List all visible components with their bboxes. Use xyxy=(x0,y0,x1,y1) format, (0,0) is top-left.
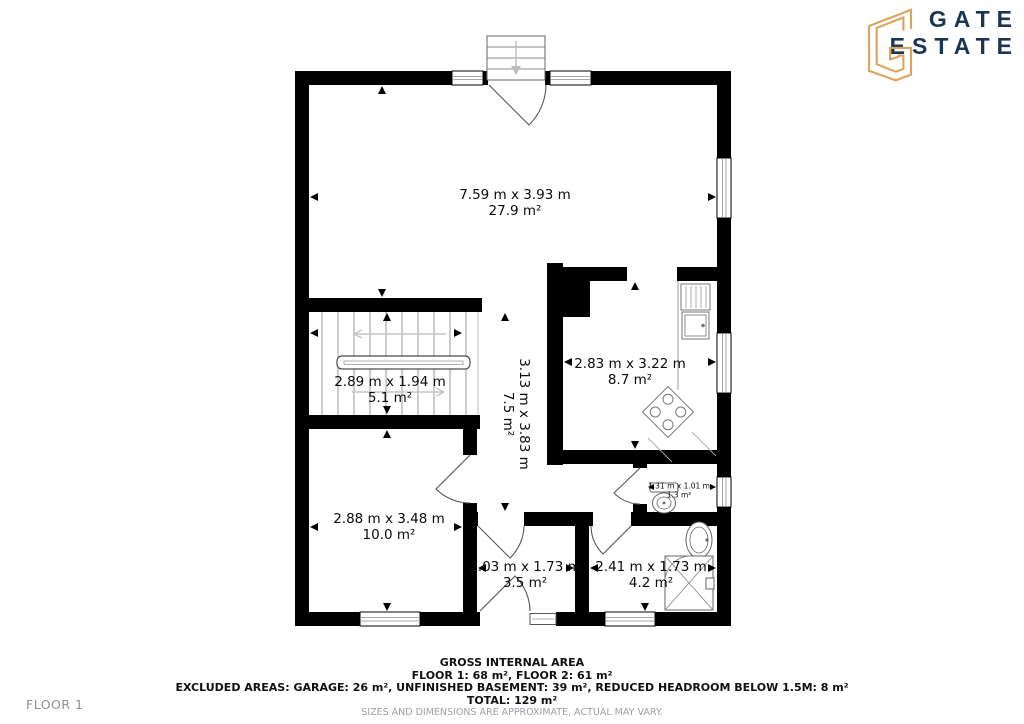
room-area: 7.5 m² xyxy=(500,358,516,470)
window-bottom-bathroom xyxy=(605,612,655,626)
shower-valve xyxy=(706,578,714,589)
room-area: 8.7 m² xyxy=(574,372,686,388)
floor-areas: FLOOR 1: 68 m², FLOOR 2: 61 m² xyxy=(0,670,1024,682)
door-mudroom-top xyxy=(478,526,524,558)
kitchen-sink-icon xyxy=(682,312,709,339)
stair-handrail xyxy=(337,356,470,369)
area-summary: GROSS INTERNAL AREA FLOOR 1: 68 m², FLOO… xyxy=(0,656,1024,719)
entry-steps xyxy=(487,36,545,80)
stove-icon xyxy=(643,387,694,438)
window-right-kitchen xyxy=(717,333,731,393)
room-dimensions: 7.59 m x 3.93 m xyxy=(459,187,571,203)
room-dimensions: 1.31 m x 1.01 m xyxy=(648,482,710,491)
room-label-bathroom: 2.41 m x 1.73 m 4.2 m² xyxy=(595,559,707,591)
room-label-bottom-left-room: 2.88 m x 3.48 m 10.0 m² xyxy=(333,511,445,543)
floor-plan-canvas: 7.59 m x 3.93 m 27.9 m² 2.83 m x 3.22 m … xyxy=(0,0,1024,724)
excluded-areas: EXCLUDED AREAS: GARAGE: 26 m², UNFINISHE… xyxy=(0,682,1024,694)
window-bottom-left-room xyxy=(360,612,420,626)
room-label-living-room: 7.59 m x 3.93 m 27.9 m² xyxy=(459,187,571,219)
fridge-icon xyxy=(681,284,710,310)
room-dimensions: 2.89 m x 1.94 m xyxy=(334,374,446,390)
brand-logo: GATE ESTATE xyxy=(862,6,1012,60)
room-dimensions: 2.41 m x 1.73 m xyxy=(595,559,707,575)
room-dimensions: 2.88 m x 3.48 m xyxy=(333,511,445,527)
room-dimensions: 3.13 m x 3.83 m xyxy=(516,358,532,470)
bathroom-sink-icon xyxy=(686,522,712,558)
chimney xyxy=(563,281,590,317)
room-label-mudroom: 2.03 m x 1.73 m 3.5 m² xyxy=(469,559,581,591)
room-label-wc: 1.31 m x 1.01 m 1.3 m² xyxy=(648,482,710,501)
front-door xyxy=(489,85,546,125)
total-area: TOTAL: 129 m² xyxy=(0,695,1024,707)
window-right-wc xyxy=(717,477,731,507)
door-sill-mudroom xyxy=(530,614,556,625)
room-area: 5.1 m² xyxy=(334,390,446,406)
window-right-living xyxy=(717,158,731,218)
brand-name-line1: GATE xyxy=(929,6,1019,33)
room-label-kitchen: 2.83 m x 3.22 m 8.7 m² xyxy=(574,356,686,388)
room-label-staircase: 2.89 m x 1.94 m 5.1 m² xyxy=(334,374,446,406)
kitchen-divider-wall xyxy=(547,263,563,465)
door-bottom-left-room xyxy=(436,455,470,503)
door-wc xyxy=(614,468,640,504)
gross-internal-area-title: GROSS INTERNAL AREA xyxy=(0,657,1024,669)
door-bathroom xyxy=(591,526,631,554)
room-area: 1.3 m² xyxy=(648,491,710,500)
room-label-hallway: 3.13 m x 3.83 m 7.5 m² xyxy=(500,358,532,470)
room-dimensions: 2.03 m x 1.73 m xyxy=(469,559,581,575)
room-area: 4.2 m² xyxy=(595,575,707,591)
room-area: 27.9 m² xyxy=(459,203,571,219)
room-area: 10.0 m² xyxy=(333,527,445,543)
disclaimer: SIZES AND DIMENSIONS ARE APPROXIMATE, AC… xyxy=(0,708,1024,718)
window-top-left xyxy=(452,71,483,85)
window-top-right xyxy=(550,71,591,85)
room-area: 3.5 m² xyxy=(469,575,581,591)
floor-number-label: FLOOR 1 xyxy=(26,697,84,712)
gate-estate-g-icon xyxy=(862,6,920,88)
room-dimensions: 2.83 m x 3.22 m xyxy=(574,356,686,372)
